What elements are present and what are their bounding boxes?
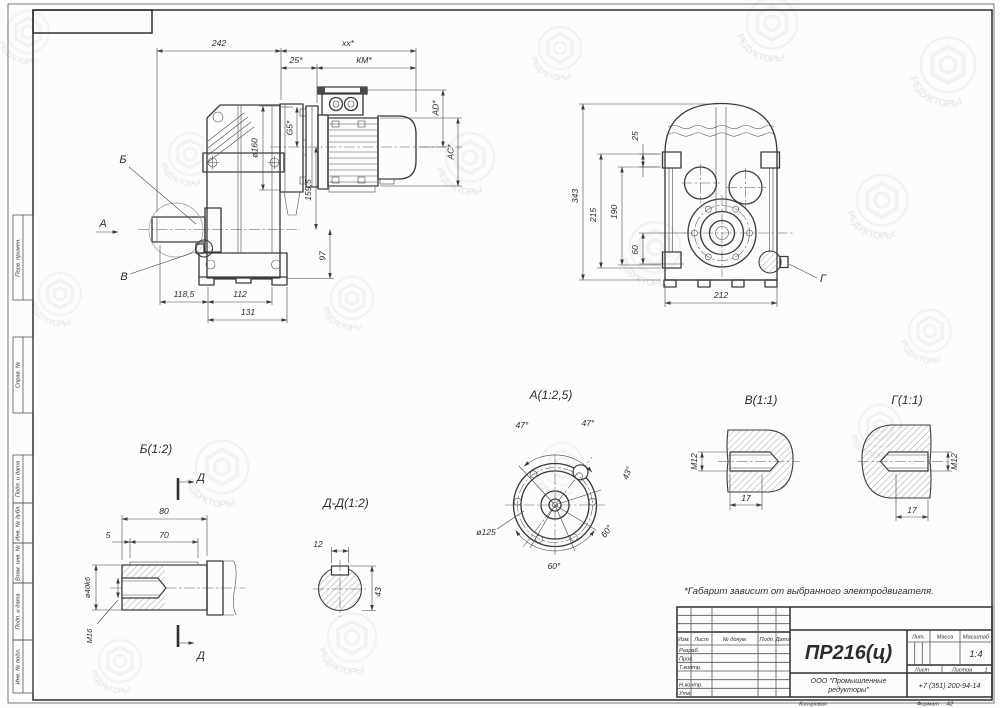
lit-label: Лит. <box>911 635 925 641</box>
dim-80: 80 <box>159 506 169 516</box>
oil-level-line <box>668 125 774 129</box>
section-dd: Д-Д(1:2) 12 43 <box>313 496 383 617</box>
dim-47-left: 47° <box>516 420 530 430</box>
margin-label: Перв. примен. <box>16 238 22 277</box>
margin-label: Инв. № дубл. <box>16 505 22 541</box>
dim-m12: М12 <box>949 453 959 470</box>
dim-12: 12 <box>313 539 323 549</box>
dim-160: ø160 <box>250 138 260 158</box>
footnote: *Габарит зависит от выбранного электродв… <box>684 586 934 597</box>
motor-fan-cover <box>378 116 416 179</box>
col-izm: Изм. <box>678 637 690 643</box>
scale-value: 1:4 <box>969 649 982 660</box>
bearing-bosses <box>681 164 766 208</box>
col-date: Дата <box>775 637 791 643</box>
reducer-housing <box>199 105 287 285</box>
dim-215: 215 <box>588 208 598 224</box>
col-podp: Подп. <box>760 637 775 643</box>
row-utv: Утв. <box>678 691 692 697</box>
row-tkontr: Т.контр. <box>679 665 702 671</box>
scale-label: Масштаб <box>963 635 990 641</box>
margin-box: Подп. и дата <box>13 455 33 503</box>
dim-1595: 159,5 <box>303 179 313 201</box>
electric-motor <box>318 87 416 192</box>
dim-40k6: ø40k6 <box>83 576 92 598</box>
terminal-box <box>318 87 367 115</box>
dim-212: 212 <box>713 290 729 300</box>
col-doc: № докум. <box>723 637 748 643</box>
view-front: 343 215 190 25 60 212 Г <box>570 104 827 308</box>
sheet-label: Лист <box>914 668 930 674</box>
company-name-2: редукторы" <box>827 685 869 694</box>
engineering-drawing: РЕДУКТОРЫ РЕДУКТОРЫ РЕДУКТОРЫ РЕДУКТОРЫ … <box>0 0 1000 708</box>
dim-343: 343 <box>570 189 580 204</box>
margin-label: Взам. инв. № <box>16 545 22 581</box>
company-phone: +7 (351) 200-94-14 <box>919 681 981 690</box>
drawing-page: РЕДУКТОРЫ РЕДУКТОРЫ РЕДУКТОРЫ РЕДУКТОРЫ … <box>0 0 1000 708</box>
margin-columns: Перв. примен. Справ. № Подп. и дата Инв.… <box>13 215 33 693</box>
margin-label: Подп. и дата <box>16 593 22 630</box>
cable-gland <box>345 98 358 111</box>
view-v-title: В(1:1) <box>745 393 778 407</box>
margin-box: Инв. № подл. <box>13 640 33 693</box>
dim-43: 43 <box>373 587 383 597</box>
margin-box: Подп. и дата <box>13 583 33 640</box>
dim-ad: AD* <box>431 100 441 117</box>
section-marker-label: Д <box>195 650 205 662</box>
doc-number: ПР216(ц) <box>805 642 893 664</box>
corner-designation-box <box>33 10 152 33</box>
col-list: Лист <box>693 637 709 643</box>
section-marker-label: Д <box>195 472 205 484</box>
margin-box: Инв. № дубл. <box>13 503 33 543</box>
dim-242: 242 <box>211 38 227 48</box>
dim-25: 25 <box>630 131 640 142</box>
margin-box: Справ. № <box>13 337 33 413</box>
row-prov: Пров. <box>679 657 694 663</box>
view-g-title: Г(1:1) <box>891 393 922 407</box>
row-nkontr: Н.контр. <box>679 683 703 689</box>
view-g: Г(1:1) М12 17 <box>858 393 959 521</box>
dim-190: 190 <box>609 205 619 220</box>
dim-25star: 25* <box>289 55 304 65</box>
dim-g5: G5* <box>285 120 295 135</box>
dim-131: 131 <box>241 307 256 317</box>
motor-feet <box>329 186 375 192</box>
front-housing <box>663 104 789 288</box>
dim-m16: М16 <box>85 628 94 644</box>
dim-1185: 118,5 <box>174 289 195 299</box>
dim-112: 112 <box>233 289 247 299</box>
plug-g <box>759 251 781 273</box>
company-name-1: ООО "Промышленные <box>811 676 887 685</box>
sheets-value: 1 <box>984 668 987 674</box>
dim-47-right: 47° <box>582 418 596 428</box>
copied-label: Копировал <box>799 702 828 708</box>
dim-70: 70 <box>159 530 169 540</box>
dim-m12: М12 <box>689 453 699 470</box>
dim-17: 17 <box>741 493 752 503</box>
margin-label: Подп. и дата <box>16 460 22 497</box>
dim-125: ø125 <box>476 527 496 537</box>
section-dd-title: Д-Д(1:2) <box>321 496 369 510</box>
dim-60-right: 60° <box>599 523 615 540</box>
oil-level-line <box>668 133 774 137</box>
format-value: А2 <box>946 702 955 708</box>
dim-xx: xx* <box>341 38 355 48</box>
view-side: 242 xx* 25* КМ* AD* AC* G5* ø160 159,5 9… <box>96 38 462 323</box>
label-g: Г <box>820 273 827 285</box>
sheets-label: Листов <box>951 668 972 674</box>
detail-b-title: Б(1:2) <box>140 442 172 456</box>
dim-97: 97 <box>318 250 328 261</box>
margin-label: Справ. № <box>16 362 22 388</box>
row-razrab: Разраб. <box>679 648 699 654</box>
dim-60-bottom: 60° <box>548 561 562 571</box>
dim-5: 5 <box>106 530 111 540</box>
mass-label: Масса <box>937 635 954 641</box>
view-v: В(1:1) М12 17 <box>689 393 800 510</box>
dim-17: 17 <box>907 505 918 515</box>
front-dimensions: 343 215 190 25 60 212 Г <box>570 104 827 307</box>
margin-label: Инв. № подл. <box>16 649 22 685</box>
view-a-title: А(1:2,5) <box>529 388 573 402</box>
format-label: Формат <box>917 702 940 708</box>
cable-gland <box>330 98 343 111</box>
tapped-hole-m16 <box>122 578 166 598</box>
dim-km: КМ* <box>356 55 372 65</box>
title-block: Изм. Лист № докум. Подп. Дата Разраб. Пр… <box>677 607 992 708</box>
dim-ac: AC* <box>446 144 456 161</box>
dim-60: 60 <box>630 245 640 255</box>
label-v: В <box>120 271 127 283</box>
margin-box: Перв. примен. <box>13 215 33 300</box>
view-a-flange: А(1:2,5) 47° 47° 43° 60° 60° ø125 <box>476 388 634 571</box>
side-dimensions: 242 xx* 25* КМ* AD* AC* G5* ø160 159,5 9… <box>96 38 462 323</box>
dim-43deg: 43° <box>620 465 634 481</box>
label-b: Б <box>119 154 126 166</box>
label-a: А <box>98 218 106 230</box>
margin-box: Взам. инв. № <box>13 543 33 583</box>
